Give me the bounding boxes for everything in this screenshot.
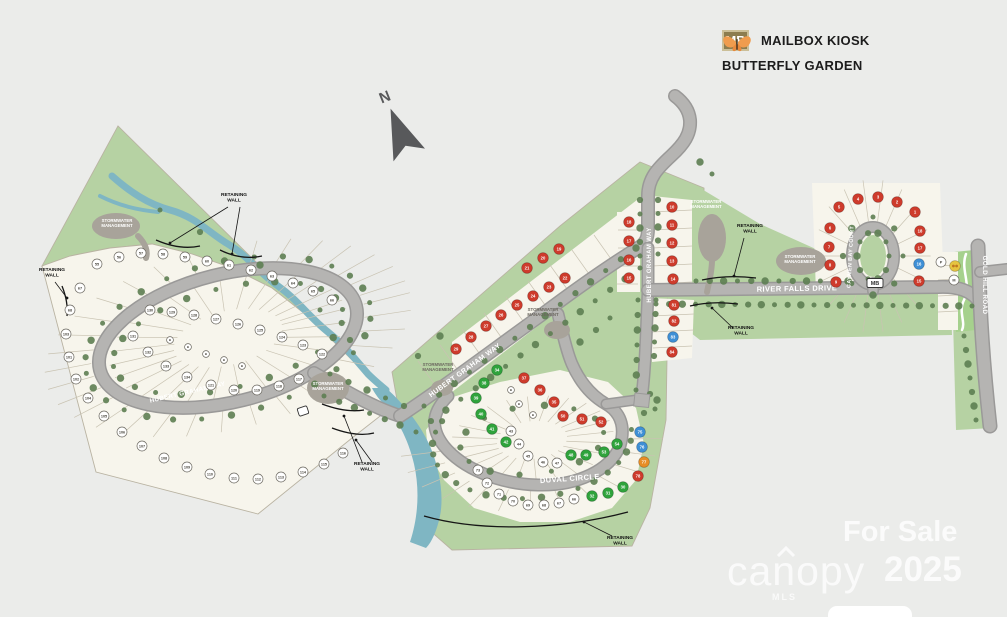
svg-text:36: 36 (538, 388, 543, 393)
tree-icon (635, 312, 641, 318)
tree-icon (840, 253, 846, 259)
svg-text:109: 109 (184, 465, 190, 469)
svg-text:M: M (952, 278, 955, 282)
tree-icon (347, 337, 353, 343)
tree-icon (90, 384, 97, 391)
svg-text:112: 112 (255, 477, 261, 481)
tree-icon (943, 303, 949, 309)
svg-text:18: 18 (918, 229, 923, 234)
svg-text:16: 16 (627, 258, 632, 263)
svg-text:111: 111 (231, 476, 237, 480)
svg-text:56: 56 (117, 255, 121, 259)
tree-icon (428, 418, 434, 424)
tree-icon (359, 284, 366, 291)
tree-icon (517, 352, 523, 358)
tree-icon (797, 301, 804, 308)
bottom-pill (828, 606, 912, 617)
tree-icon (100, 321, 105, 326)
tree-icon (679, 300, 686, 307)
svg-text:69: 69 (526, 503, 530, 507)
tree-icon (122, 407, 127, 412)
tree-icon (576, 338, 583, 345)
tree-icon (430, 451, 436, 457)
tree-icon (549, 469, 554, 474)
tree-icon (532, 341, 539, 348)
svg-text:29: 29 (454, 347, 459, 352)
tree-icon (305, 256, 312, 263)
tree-icon (87, 337, 94, 344)
svg-text:121: 121 (208, 383, 214, 387)
tree-icon (696, 158, 703, 165)
tree-icon (503, 364, 508, 369)
svg-text:131: 131 (130, 334, 136, 338)
svg-text:77: 77 (642, 460, 647, 465)
tree-icon (745, 301, 751, 307)
tree-icon (170, 416, 176, 422)
tree-icon (382, 416, 388, 422)
tree-icon (572, 290, 578, 296)
svg-text:60: 60 (205, 259, 209, 263)
tree-icon (256, 261, 263, 268)
watermark-brand-sub: MLS (772, 592, 797, 602)
tree-icon (298, 281, 303, 286)
tree-icon (605, 469, 611, 475)
svg-text:54: 54 (615, 442, 620, 447)
svg-text:123: 123 (300, 343, 306, 347)
tree-icon (962, 334, 967, 339)
tree-icon (616, 460, 621, 465)
svg-text:103: 103 (63, 332, 69, 336)
tree-icon (901, 254, 906, 259)
tree-icon (442, 471, 449, 478)
tree-icon (776, 279, 781, 284)
svg-text:57: 57 (139, 251, 143, 255)
tree-icon (628, 438, 634, 444)
svg-text:106: 106 (119, 430, 125, 434)
svg-text:76: 76 (640, 445, 645, 450)
tree-icon (422, 404, 427, 409)
tree-icon (637, 197, 643, 203)
caymen-island (860, 235, 886, 277)
tree-icon (916, 302, 923, 309)
tree-icon (837, 301, 844, 308)
tree-icon (516, 472, 522, 478)
svg-text:126: 126 (235, 322, 241, 326)
tree-icon (969, 389, 975, 395)
svg-text:41: 41 (490, 427, 495, 432)
stormwater-label: STORMWATERMANAGEMENT (690, 199, 722, 209)
tree-icon (748, 278, 754, 284)
tree-icon (587, 278, 594, 285)
tree-icon (153, 390, 158, 395)
tree-icon (243, 281, 249, 287)
svg-text:75: 75 (638, 430, 643, 435)
tree-icon (347, 273, 353, 279)
tree-icon (652, 311, 658, 317)
legend-label-mailbox: MAILBOX KIOSK (761, 33, 870, 48)
tree-icon (651, 353, 657, 359)
svg-text:73: 73 (476, 468, 480, 472)
svg-text:124: 124 (279, 335, 286, 339)
svg-text:21: 21 (525, 266, 530, 271)
road-duval-stub (606, 400, 636, 404)
svg-text:45: 45 (526, 454, 530, 458)
svg-text:27: 27 (484, 324, 489, 329)
tree-icon (785, 302, 791, 308)
tree-icon (84, 371, 89, 376)
tree-icon (157, 307, 163, 313)
tree-icon (458, 397, 463, 402)
tree-icon (577, 308, 584, 315)
tree-icon (656, 252, 661, 257)
svg-text:42: 42 (504, 440, 509, 445)
tree-icon (637, 239, 643, 245)
tree-icon (857, 267, 863, 273)
svg-text:37: 37 (522, 376, 527, 381)
svg-text:130: 130 (147, 308, 153, 312)
svg-text:49: 49 (584, 453, 589, 458)
lot-marker (950, 261, 961, 272)
tree-icon (735, 279, 740, 284)
tree-icon (652, 340, 657, 345)
tree-icon (318, 308, 323, 313)
tree-icon (467, 459, 472, 464)
tree-icon (367, 316, 373, 322)
tree-icon (964, 360, 971, 367)
svg-text:18: 18 (627, 220, 632, 225)
tree-icon (634, 326, 641, 333)
tree-icon (812, 303, 817, 308)
tree-icon (116, 304, 122, 310)
svg-text:66: 66 (330, 298, 334, 302)
tree-icon (83, 354, 89, 360)
svg-text:51: 51 (580, 417, 585, 422)
tree-icon (192, 265, 198, 271)
tree-icon (876, 302, 883, 309)
svg-text:34: 34 (495, 368, 500, 373)
tree-icon (623, 448, 630, 455)
svg-text:39: 39 (474, 396, 479, 401)
svg-text:24: 24 (531, 294, 536, 299)
tree-icon (266, 374, 273, 381)
svg-text:114: 114 (300, 470, 307, 474)
svg-text:53: 53 (602, 450, 607, 455)
tree-icon (636, 224, 643, 231)
svg-text:35: 35 (552, 400, 557, 405)
tree-icon (527, 324, 533, 330)
tree-icon (883, 267, 889, 273)
svg-text:52: 52 (599, 420, 604, 425)
svg-text:30: 30 (621, 485, 626, 490)
svg-text:116: 116 (340, 451, 346, 455)
svg-text:134: 134 (184, 375, 191, 379)
tree-icon (656, 211, 661, 216)
svg-text:125: 125 (257, 328, 263, 332)
tree-icon (435, 463, 440, 468)
tree-icon (361, 332, 368, 339)
tree-icon (415, 353, 421, 359)
tree-icon (328, 372, 333, 377)
svg-text:132: 132 (145, 350, 151, 354)
tree-icon (638, 212, 643, 217)
watermark-for-sale: For Sale (843, 516, 957, 549)
tree-icon (228, 411, 235, 418)
tree-icon (117, 374, 124, 381)
tree-icon (874, 229, 881, 236)
svg-text:110: 110 (207, 472, 213, 476)
tree-icon (955, 302, 962, 309)
tree-icon (654, 302, 659, 307)
svg-text:84: 84 (670, 350, 675, 355)
tree-icon (439, 418, 445, 424)
svg-text:67: 67 (557, 501, 561, 505)
svg-text:71: 71 (497, 492, 501, 496)
tree-icon (339, 320, 345, 326)
svg-text:23: 23 (547, 285, 552, 290)
tree-icon (287, 395, 292, 400)
tree-icon (213, 287, 218, 292)
tree-icon (858, 239, 863, 244)
tree-icon (158, 208, 163, 213)
tree-icon (520, 496, 525, 501)
tree-icon (891, 225, 897, 231)
tree-icon (558, 302, 563, 307)
tree-icon (930, 303, 935, 308)
tree-icon (340, 307, 345, 312)
tree-icon (903, 302, 909, 308)
tree-icon (636, 298, 641, 303)
svg-text:66: 66 (572, 497, 576, 501)
tree-icon (548, 331, 553, 336)
tree-icon (718, 301, 725, 308)
svg-text:117: 117 (296, 377, 302, 381)
road-label: RIVER FALLS DRIVE (757, 283, 838, 293)
tree-icon (258, 405, 264, 411)
tree-icon (414, 430, 419, 435)
legend-row-butterfly: BUTTERFLY GARDEN (722, 58, 870, 73)
svg-text:14: 14 (671, 277, 676, 282)
svg-text:62: 62 (249, 268, 253, 272)
tree-icon (970, 402, 977, 409)
svg-text:102: 102 (73, 377, 79, 381)
north-arrow-glyph (375, 102, 425, 161)
tree-icon (562, 320, 568, 326)
stormwater-label: STORMWATERMANAGEMENT (101, 218, 133, 228)
tree-icon (851, 303, 856, 308)
svg-text:47: 47 (555, 461, 559, 465)
tree-icon (575, 486, 580, 491)
svg-text:83: 83 (671, 335, 676, 340)
tree-icon (457, 444, 463, 450)
svg-text:46: 46 (541, 460, 545, 464)
tree-icon (706, 301, 712, 307)
legend-label-butterfly: BUTTERFLY GARDEN (722, 58, 863, 73)
tree-icon (968, 376, 973, 381)
tree-icon (603, 268, 608, 273)
tree-icon (197, 229, 203, 235)
svg-text:115: 115 (321, 462, 327, 466)
road-label: HUBERT GRAHAM WAY (647, 227, 653, 302)
stormwater-label: STORMWATERMANAGEMENT (527, 307, 559, 317)
svg-text:P: P (940, 260, 943, 264)
tree-icon (541, 402, 548, 409)
svg-text:101: 101 (66, 355, 72, 359)
tree-icon (974, 418, 979, 423)
tree-icon (632, 244, 639, 251)
svg-text:133: 133 (163, 364, 169, 368)
svg-text:20: 20 (541, 256, 546, 261)
tree-icon (618, 256, 624, 262)
tree-icon (887, 254, 892, 259)
tree-icon (772, 302, 777, 307)
svg-text:107: 107 (139, 444, 145, 448)
tree-icon (164, 276, 169, 281)
tree-icon (462, 428, 469, 435)
tree-icon (429, 440, 436, 447)
watermark-brand-roof (776, 545, 796, 557)
svg-text:17: 17 (627, 239, 632, 244)
tree-icon (280, 253, 286, 259)
svg-text:50: 50 (561, 414, 566, 419)
tree-icon (824, 302, 830, 308)
tree-icon (891, 303, 896, 308)
svg-text:82: 82 (672, 319, 677, 324)
svg-text:122: 122 (319, 352, 325, 356)
svg-text:67: 67 (78, 286, 82, 290)
tree-icon (111, 364, 116, 369)
svg-text:119: 119 (254, 388, 260, 392)
site-plan-stage: HUBERT GRAHAM WAYHUBERT GRAHAM WAYHUBERT… (0, 0, 1007, 617)
tree-icon (864, 302, 870, 308)
tree-icon (694, 279, 699, 284)
tree-icon (132, 384, 138, 390)
tree-icon (453, 480, 459, 486)
tree-icon (634, 357, 640, 363)
tree-icon (329, 264, 334, 269)
svg-text:12: 12 (670, 241, 675, 246)
tree-icon (601, 430, 606, 435)
butterfly-icon (722, 30, 752, 52)
retaining-wall-label: RETAININGWALL (354, 461, 380, 473)
tree-icon (367, 300, 372, 305)
svg-text:104: 104 (85, 396, 92, 400)
tree-icon (633, 371, 640, 378)
svg-text:118: 118 (276, 384, 282, 388)
svg-text:15: 15 (627, 276, 632, 281)
svg-text:48: 48 (569, 453, 574, 458)
tree-icon (138, 288, 145, 295)
svg-text:11: 11 (670, 223, 675, 228)
tree-icon (853, 252, 860, 259)
tree-icon (401, 403, 407, 409)
tree-icon (869, 291, 876, 298)
svg-text:16: 16 (917, 262, 922, 267)
stormwater-blob (698, 214, 726, 262)
svg-text:55: 55 (95, 262, 99, 266)
tree-icon (883, 239, 888, 244)
tree-icon (963, 347, 969, 353)
tree-icon (654, 223, 661, 230)
legend: MB MAILBOX KIOSK BUTTERFLY GARDEN (722, 30, 870, 73)
tree-icon (345, 379, 351, 385)
svg-text:120: 120 (231, 388, 237, 392)
svg-text:17: 17 (918, 246, 923, 251)
road-label: GOLD HILL ROAD (981, 256, 988, 315)
svg-text:129: 129 (169, 310, 175, 314)
tree-icon (183, 295, 190, 302)
svg-text:72: 72 (485, 481, 489, 485)
svg-text:MB: MB (871, 281, 880, 287)
tree-icon (641, 410, 647, 416)
tree-icon (655, 197, 661, 203)
stormwater-label: STORMWATERMANAGEMENT (784, 254, 816, 264)
tree-icon (433, 430, 438, 435)
svg-text:68: 68 (68, 308, 72, 312)
tree-icon (199, 417, 204, 422)
svg-text:61: 61 (227, 263, 231, 267)
tree-icon (608, 316, 613, 321)
tree-icon (318, 286, 324, 292)
tree-icon (607, 287, 613, 293)
svg-text:81: 81 (672, 303, 677, 308)
svg-text:128: 128 (191, 313, 197, 317)
tree-icon (136, 321, 141, 326)
svg-text:65: 65 (311, 289, 315, 293)
tree-icon (482, 491, 489, 498)
tree-icon (651, 324, 658, 331)
tree-icon (653, 407, 658, 412)
stormwater-label: STORMWATERMANAGEMENT (312, 381, 344, 391)
svg-text:113: 113 (278, 475, 284, 479)
tree-icon (634, 388, 639, 393)
stormwater-label: STORMWATERMANAGEMENT (422, 362, 454, 372)
tree-icon (143, 413, 150, 420)
tree-icon (891, 280, 897, 286)
svg-text:13: 13 (670, 259, 675, 264)
svg-text:59: 59 (183, 255, 187, 259)
tree-icon (367, 411, 372, 416)
tree-icon (593, 298, 598, 303)
tree-icon (653, 396, 660, 403)
svg-text:63: 63 (270, 274, 274, 278)
svg-text:78: 78 (636, 474, 641, 479)
north-arrow-label: N (377, 87, 393, 107)
tree-icon (557, 491, 563, 497)
svg-text:58: 58 (161, 252, 165, 256)
svg-text:10: 10 (670, 205, 675, 210)
tree-icon (638, 266, 643, 271)
tree-icon (111, 350, 117, 356)
svg-text:68: 68 (542, 503, 546, 507)
tree-icon (103, 397, 109, 403)
tree-icon (758, 301, 765, 308)
tree-icon (655, 237, 661, 243)
svg-text:105: 105 (101, 414, 107, 418)
svg-text:31: 31 (606, 491, 611, 496)
tree-icon (720, 277, 727, 284)
tree-icon (119, 335, 126, 342)
tree-icon (330, 334, 337, 341)
tree-icon (467, 487, 472, 492)
tree-icon (333, 366, 339, 372)
tree-icon (512, 336, 517, 341)
north-arrow: N (340, 80, 460, 190)
svg-text:38: 38 (482, 381, 487, 386)
tree-icon (576, 458, 583, 465)
dead-end-pad (634, 393, 650, 407)
tree-icon (322, 394, 327, 399)
tree-icon (363, 386, 370, 393)
